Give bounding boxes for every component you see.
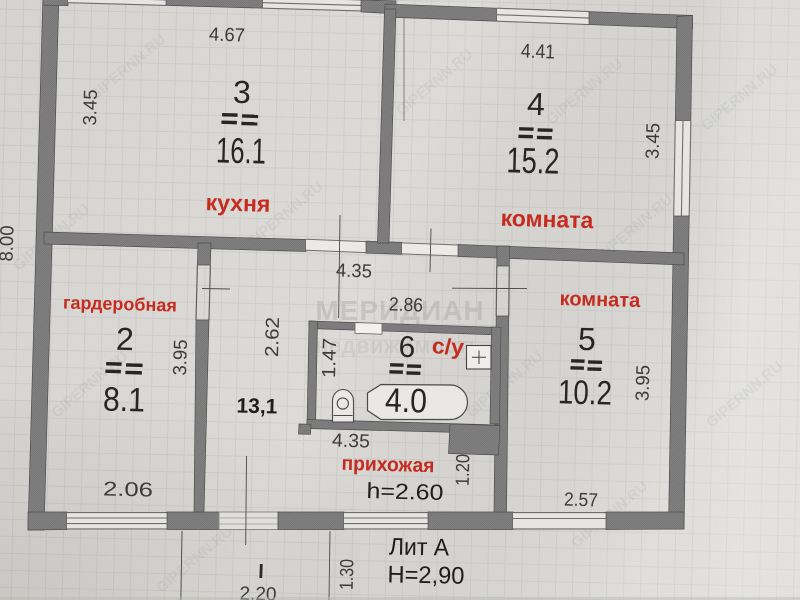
svg-text:4: 4 (527, 86, 546, 122)
svg-text:прихожая: прихожая (341, 453, 435, 477)
svg-text:2.62: 2.62 (262, 317, 284, 358)
svg-text:комната: комната (559, 288, 641, 312)
svg-text:8.00: 8.00 (0, 225, 18, 262)
svg-text:4.0: 4.0 (384, 381, 427, 420)
svg-text:1.47: 1.47 (319, 338, 341, 379)
svg-text:2.06: 2.06 (103, 478, 154, 501)
svg-text:10.2: 10.2 (557, 373, 612, 412)
svg-text:кухня: кухня (205, 189, 270, 217)
svg-text:16.1: 16.1 (215, 129, 266, 171)
svg-text:комната: комната (500, 205, 594, 233)
svg-text:13,1: 13,1 (236, 394, 278, 418)
svg-text:2.86: 2.86 (389, 294, 424, 316)
svg-text:4.41: 4.41 (521, 40, 556, 63)
svg-text:4.67: 4.67 (209, 24, 246, 46)
svg-text:4.35: 4.35 (332, 430, 371, 452)
svg-text:H=2,90: H=2,90 (387, 561, 464, 589)
svg-text:8.1: 8.1 (102, 380, 145, 419)
svg-text:1.30: 1.30 (337, 559, 359, 591)
svg-text:h=2.60: h=2.60 (366, 478, 444, 505)
svg-text:3: 3 (233, 74, 252, 110)
svg-text:3.45: 3.45 (80, 89, 102, 126)
svg-text:2.57: 2.57 (564, 490, 599, 512)
svg-text:2: 2 (116, 321, 135, 357)
svg-text:Лит А: Лит А (389, 533, 449, 561)
svg-text:3.95: 3.95 (633, 365, 655, 402)
svg-text:3.95: 3.95 (170, 339, 192, 376)
svg-text:15.2: 15.2 (506, 139, 560, 181)
svg-text:5: 5 (578, 321, 597, 357)
svg-text:гардеробная: гардеробная (63, 293, 177, 316)
svg-text:3.45: 3.45 (643, 123, 665, 160)
svg-text:6: 6 (398, 331, 416, 364)
svg-text:4.35: 4.35 (336, 260, 373, 282)
svg-text:с/у: с/у (431, 333, 465, 360)
svg-text:1.20: 1.20 (453, 454, 475, 487)
